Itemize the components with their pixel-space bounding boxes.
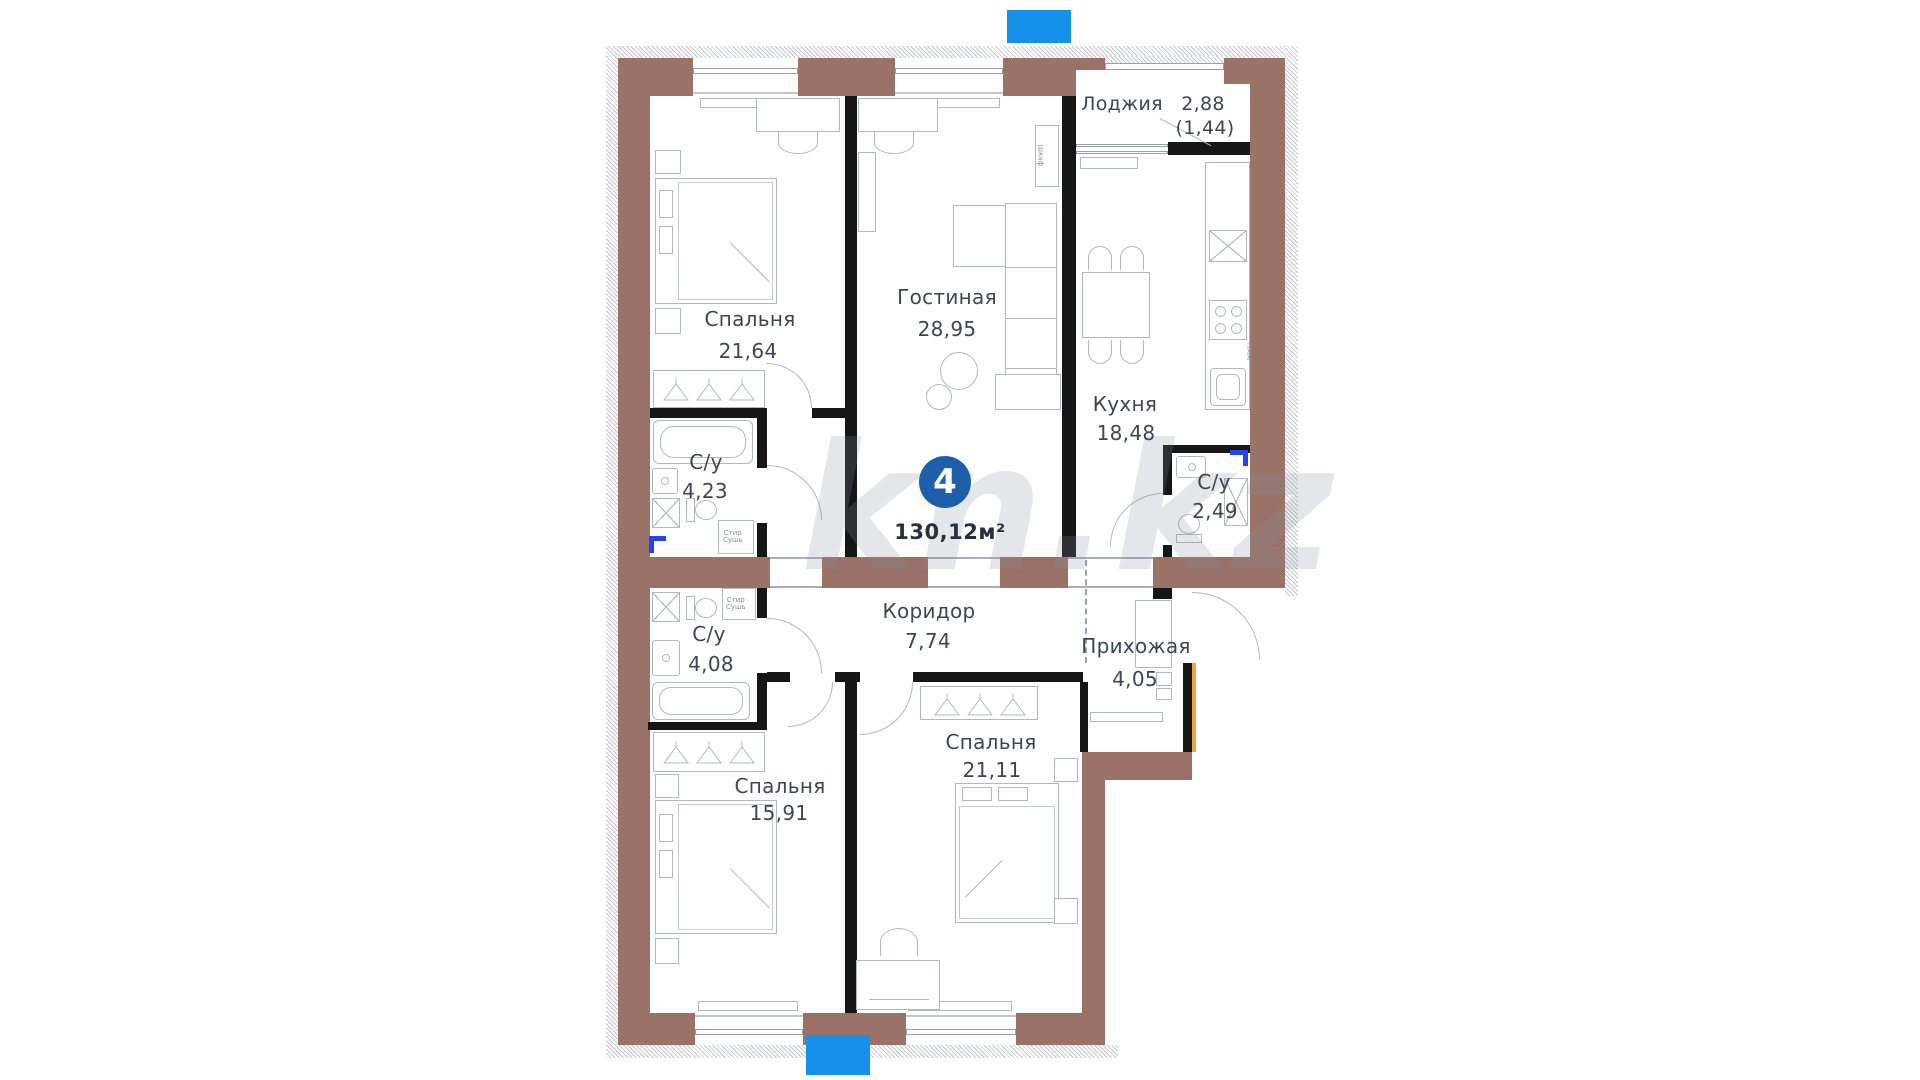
label-loggia-name: Лоджия — [1081, 93, 1163, 115]
dryer-cabinet-icon: Стир Сушь — [722, 588, 756, 620]
label-corridor-name: Коридор — [883, 599, 976, 623]
toilet-tank-icon — [1176, 534, 1202, 543]
blanket — [959, 806, 1055, 919]
loggia-door-sill — [1076, 151, 1168, 154]
label-bedroom-right-area: 21,11 — [963, 758, 1022, 782]
dining-table-icon — [1082, 272, 1150, 338]
wall-wc2-left-b — [1163, 545, 1172, 557]
label-kitchen-name: Кухня — [1093, 392, 1157, 416]
stool-icon — [1120, 246, 1144, 270]
sofa-chaise-icon — [953, 205, 1007, 267]
wall-bedroom-left-top-a — [767, 672, 790, 682]
chair-icon — [880, 928, 918, 956]
doorway-living — [928, 557, 1000, 588]
stool-icon — [1120, 340, 1144, 364]
entry-door-arc — [1192, 592, 1260, 660]
round-table-icon — [940, 352, 978, 390]
total-area-label: 130,12м² — [894, 520, 1005, 544]
chair-icon — [778, 132, 818, 154]
fridge-icon — [1209, 230, 1247, 262]
chair-icon — [874, 132, 914, 154]
cabinet-icon: Шкаф — [1035, 125, 1059, 187]
pillow-icon — [659, 850, 673, 878]
pillow-icon — [659, 814, 673, 842]
pouf-icon — [926, 384, 952, 410]
hangers-icon — [931, 691, 1029, 719]
label-bedroom-right-name: Спальня — [945, 730, 1036, 754]
wardrobe-icon — [653, 370, 765, 408]
riser-mark-icon — [1230, 450, 1248, 466]
wall-entry-stub — [1153, 588, 1172, 599]
pillow-icon — [659, 226, 673, 254]
nightstand-icon — [655, 308, 681, 334]
label-hallway-area: 4,05 — [1112, 667, 1158, 691]
loggia-window — [1105, 63, 1224, 70]
hatch-right — [1285, 46, 1298, 596]
nightstand-icon — [1054, 758, 1078, 782]
electrical-panel-icon — [1156, 672, 1172, 686]
wall-wc3-bottom — [648, 722, 767, 730]
wall-bedroom-left-top-b — [835, 672, 845, 682]
pillow-icon — [998, 787, 1028, 801]
wardrobe-icon — [653, 732, 765, 772]
label-corridor-area: 7,74 — [905, 629, 951, 653]
wall-hallway-left — [1080, 682, 1088, 752]
wall-bedroom-living — [845, 96, 857, 557]
label-kitchen-area: 18,48 — [1097, 421, 1156, 445]
wall-exterior-notch-vertical — [1082, 752, 1105, 1013]
shelf-icon — [858, 152, 876, 232]
stool-icon — [1088, 246, 1112, 270]
label-bathroom1-name: С/у — [689, 450, 722, 474]
dryer-cabinet-icon: Стир Сушь — [718, 520, 754, 554]
window-bedroom-right — [906, 1013, 1016, 1045]
label-bathroom3-area: 4,08 — [688, 652, 734, 676]
electrical-panel-icon — [1156, 688, 1172, 700]
label-bedroom-top-name: Спальня — [704, 307, 795, 331]
label-bathroom1-area: 4,23 — [682, 479, 728, 503]
sink-icon — [652, 640, 680, 676]
wall-wc1-top-right — [812, 408, 845, 418]
wall-wc1-right-b — [757, 523, 767, 557]
label-hallway-name: Прихожая — [1081, 634, 1191, 658]
wall-exterior-left — [618, 58, 650, 1045]
sofa-cushion-line — [1005, 368, 1057, 369]
wall-wc1-right-a — [757, 418, 767, 468]
window-living — [895, 58, 1003, 96]
label-bedroom-top-area: 21,64 — [719, 339, 778, 363]
tv-stand-icon — [995, 374, 1061, 410]
desk-icon — [858, 98, 938, 132]
wall-living-kitchen — [1062, 96, 1076, 557]
washer-icon — [652, 498, 680, 528]
radiator — [698, 1001, 798, 1011]
window-bedroom-left — [695, 1013, 803, 1045]
window-sill-cabinet — [1080, 157, 1138, 169]
toilet-icon — [695, 500, 717, 520]
sofa-cushion-line — [1005, 318, 1057, 319]
hangers-icon — [660, 739, 758, 767]
entrance-marker-bottom — [806, 1035, 870, 1075]
pillow-icon — [659, 190, 673, 218]
nightstand-icon — [655, 938, 679, 964]
toilet-tank-icon — [686, 596, 695, 620]
dishwasher-label: ПММ — [1245, 343, 1252, 360]
wall-bedroom-right-top-b — [913, 672, 1083, 682]
rooms-count-badge: 4 — [919, 456, 971, 508]
label-living-name: Гостиная — [897, 285, 997, 309]
nightstand-icon — [655, 150, 681, 174]
blanket — [678, 182, 773, 300]
hatch-left — [606, 46, 618, 1058]
floor-plan: Шкаф ПММ Стир Сушь — [0, 0, 1920, 1080]
wall-corner-top-right — [1224, 58, 1252, 84]
desk-icon — [856, 960, 940, 1010]
entry-door-leaf — [1192, 663, 1196, 752]
bathtub-icon — [652, 682, 750, 720]
doorway-kitchen — [1068, 557, 1153, 588]
nightstand-icon — [1054, 898, 1078, 924]
label-bedroom-left-area: 15,91 — [750, 801, 809, 825]
kitchen-sink-icon — [1210, 368, 1246, 406]
toilet-icon — [695, 598, 717, 618]
sofa-cushion-line — [1005, 267, 1057, 268]
pillow-icon — [962, 787, 992, 801]
label-loggia-area-coeff: (1,44) — [1176, 117, 1235, 139]
nightstand-icon — [655, 774, 679, 798]
label-living-area: 28,95 — [918, 317, 977, 341]
entrance-marker-top — [1007, 10, 1071, 43]
label-bedroom-left-name: Спальня — [734, 774, 825, 798]
label-loggia-area: 2,88 — [1181, 93, 1225, 115]
wardrobe-icon — [920, 686, 1038, 720]
desk-icon — [756, 98, 840, 132]
wall-wc1-top — [650, 408, 767, 418]
sofa-icon — [1005, 203, 1057, 380]
window-bedroom-top — [693, 58, 798, 96]
riser-mark-icon — [649, 536, 666, 553]
label-bathroom2-name: С/у — [1197, 470, 1230, 494]
loggia-door-window — [1076, 144, 1168, 147]
wall-exterior-right — [1250, 58, 1285, 588]
wall-bedroom-right-top-a — [845, 672, 860, 682]
sink-icon — [652, 468, 678, 494]
doorway-lobby — [770, 557, 822, 588]
wall-wc3-right-b — [757, 673, 767, 722]
hangers-icon — [660, 376, 758, 404]
washer-icon — [652, 592, 680, 622]
shoe-bench-icon — [1090, 712, 1163, 722]
stove-icon — [1209, 300, 1247, 340]
wall-wc3-right-a — [757, 588, 767, 618]
wall-wc2-left-a — [1163, 453, 1172, 495]
wall-hallway-right — [1183, 663, 1192, 752]
label-bathroom3-name: С/у — [692, 622, 725, 646]
stool-icon — [1088, 340, 1112, 364]
label-bathroom2-area: 2,49 — [1192, 499, 1238, 523]
